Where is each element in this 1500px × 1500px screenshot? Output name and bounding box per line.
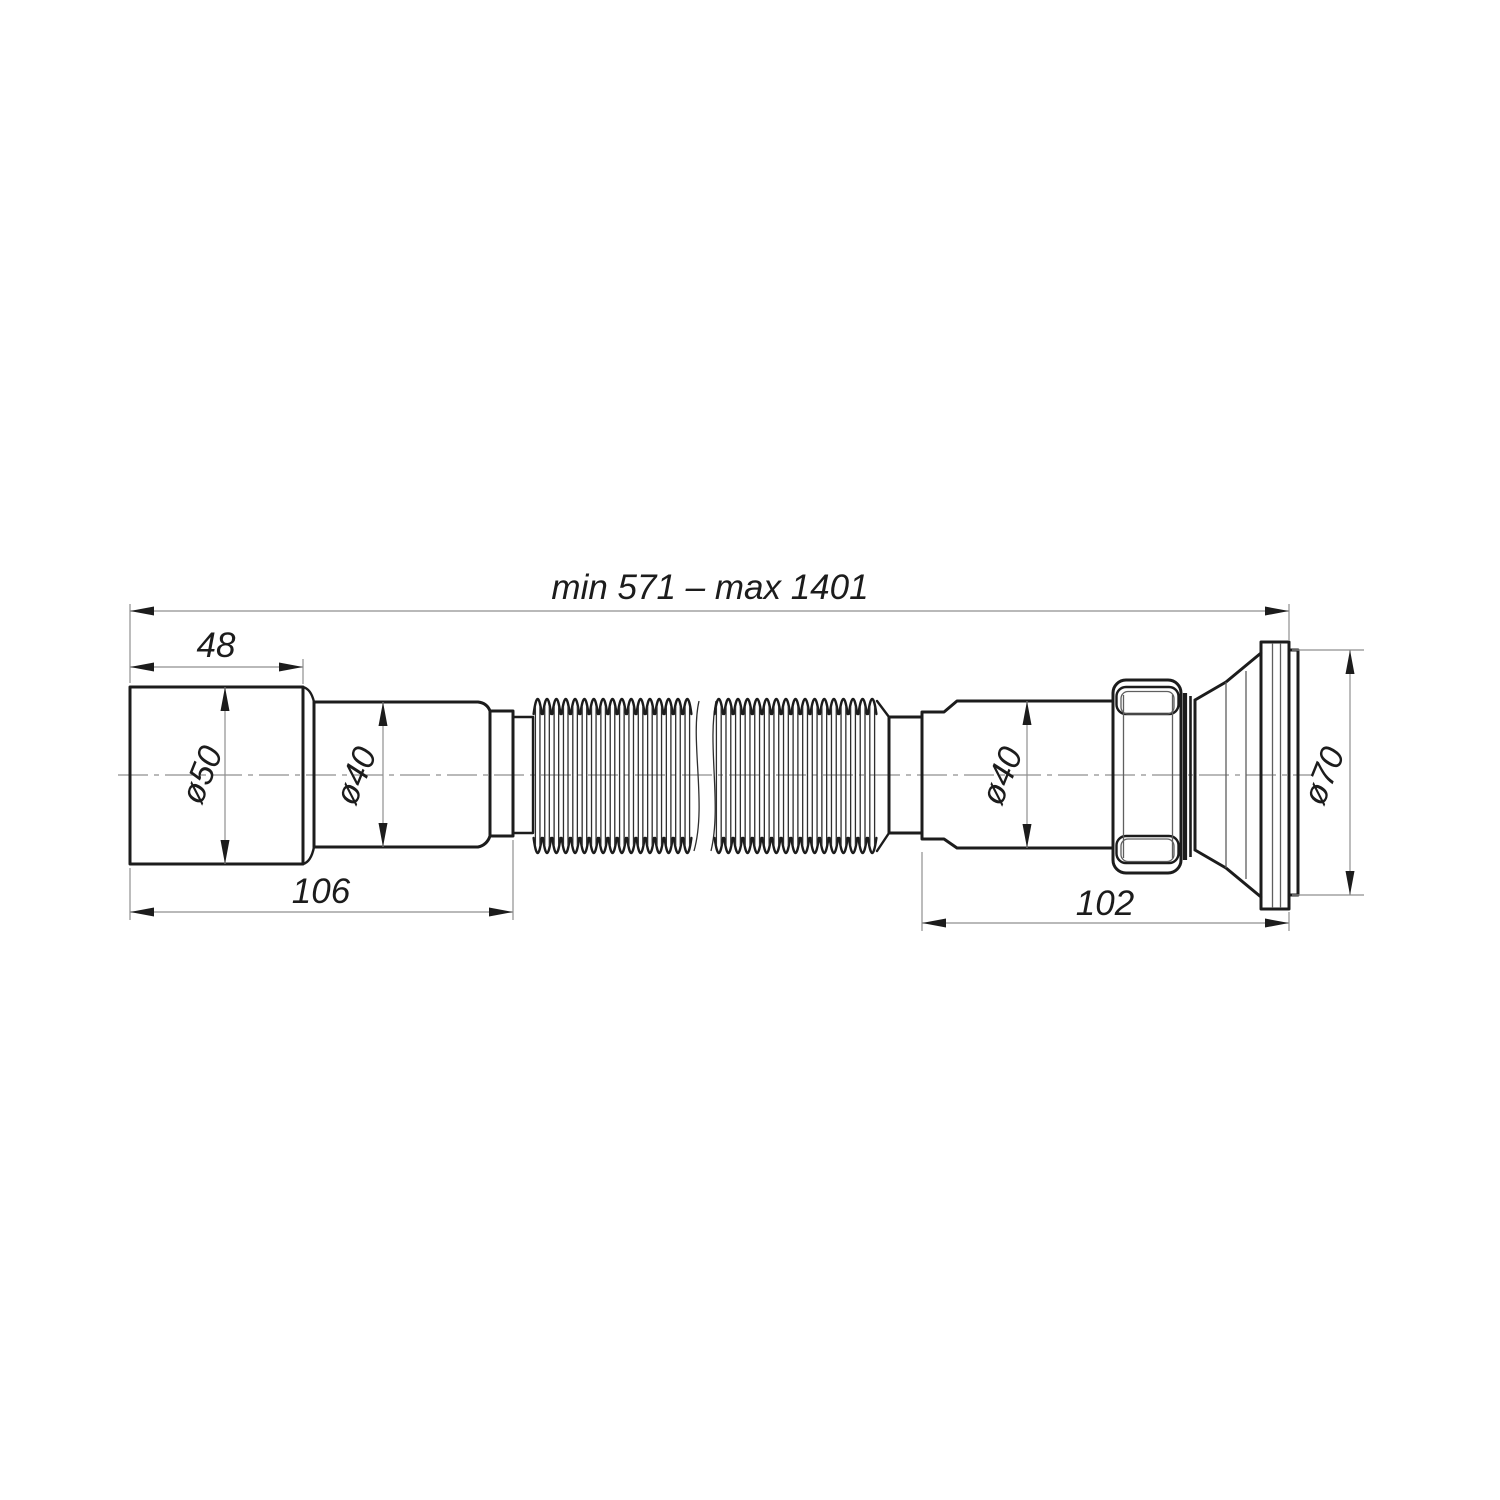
arrowhead-left [130, 908, 154, 917]
arrowhead-up [1346, 650, 1355, 674]
arrowhead-right [1265, 607, 1289, 616]
pipe-break-symbol-right [711, 701, 716, 851]
dim-inlet-diameter: ø50 [173, 687, 230, 864]
arrowhead-right [489, 908, 513, 917]
arrowhead-down [1346, 871, 1355, 895]
dim-overall-label: min 571 – max 1401 [551, 568, 868, 607]
dim-dia40-left-label: ø40 [327, 742, 384, 811]
corrugated-hose-left-section [534, 699, 692, 853]
dim-102-label: 102 [1076, 884, 1134, 923]
outlet-lip [1289, 650, 1298, 895]
technical-drawing: min 571 – max 1401 48 ø50 ø40 106 ø40 [0, 0, 1500, 1500]
arrowhead-left [130, 663, 154, 672]
nut-flat-top-inner [1121, 692, 1174, 715]
dim-outlet-diameter: ø70 [1292, 650, 1364, 895]
nut-face-lines [1124, 695, 1173, 858]
arrowhead-left [130, 607, 154, 616]
dim-left-end-length: 106 [130, 840, 513, 920]
dim-right-pipe-diameter: ø40 [973, 701, 1031, 848]
dim-106-label: 106 [292, 872, 351, 911]
hose-taper-right [877, 701, 889, 851]
arrowhead-down [379, 823, 388, 847]
arrowhead-up [1023, 701, 1032, 725]
dim-right-end-length: 102 [922, 852, 1289, 931]
extension-lines [130, 604, 1289, 683]
arrowhead-right [1265, 919, 1289, 928]
nut-flat-bottom-inner [1121, 839, 1174, 862]
dim-inlet-depth: 48 [130, 626, 303, 684]
pipe-break-symbol-left [694, 701, 699, 851]
dim-dia50-label: ø50 [173, 741, 230, 810]
dim-dia70-label: ø70 [1295, 742, 1352, 811]
arrowhead-left [922, 919, 946, 928]
arrowhead-up [379, 702, 388, 726]
arrowhead-down [1023, 824, 1032, 848]
arrowhead-up [221, 687, 230, 711]
dim-48-label: 48 [197, 626, 236, 665]
dim-overall-length: min 571 – max 1401 [130, 568, 1289, 683]
arrowhead-down [221, 840, 230, 864]
nut-flat-bottom [1117, 836, 1179, 863]
drawing-page: min 571 – max 1401 48 ø50 ø40 106 ø40 [0, 0, 1500, 1500]
corrugated-hose-right-section [715, 699, 877, 853]
dim-dia40-right-label: ø40 [973, 742, 1030, 811]
hose-collar-left [490, 711, 513, 836]
arrowhead-right [279, 663, 303, 672]
